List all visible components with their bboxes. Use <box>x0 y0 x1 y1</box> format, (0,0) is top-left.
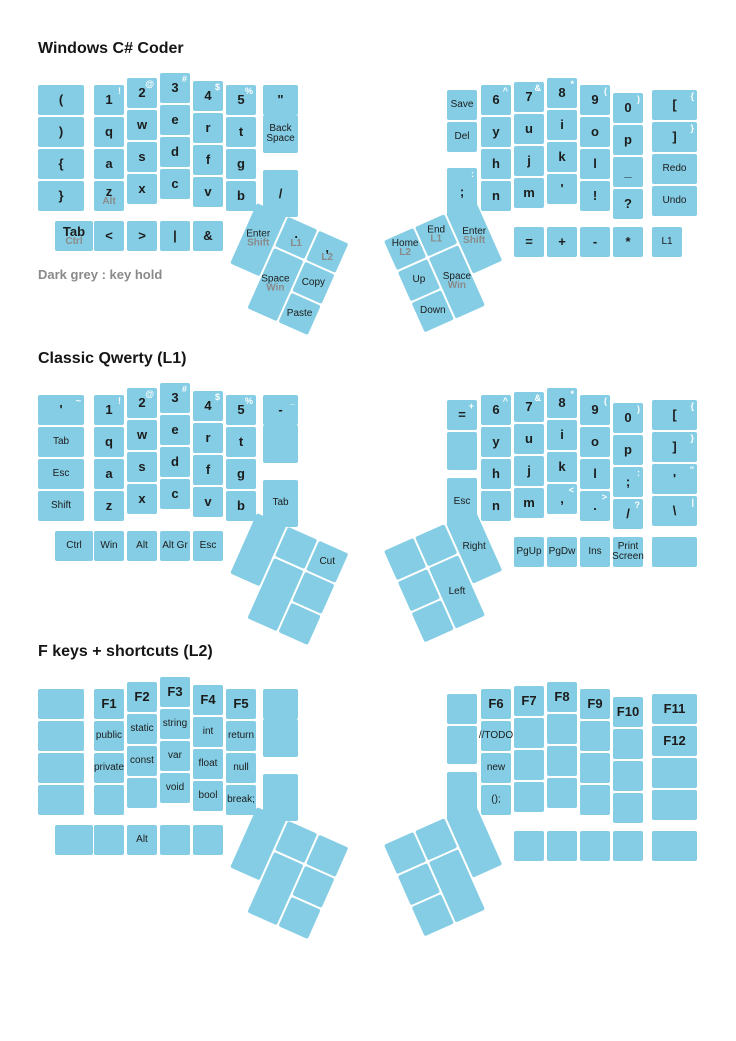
key-label: F2 <box>134 690 149 703</box>
key-symbol: } <box>38 181 84 211</box>
key-label: 5 <box>237 403 244 416</box>
key-label: + <box>558 235 566 248</box>
key-shift-symbol: $ <box>215 82 220 92</box>
key-d: d <box>160 137 190 167</box>
key-8: 8* <box>547 78 577 108</box>
key-h: h <box>481 459 511 489</box>
key-blank <box>447 726 477 764</box>
key-label: null <box>233 763 249 773</box>
key-blank <box>580 785 610 815</box>
key-2: 2@ <box>127 388 157 418</box>
key-shift-symbol: : <box>471 169 474 179</box>
key-ctrl: Ctrl <box>55 531 93 561</box>
key-blank <box>514 750 544 780</box>
key-label: i <box>560 428 564 441</box>
key-esc: Esc <box>38 459 84 489</box>
key-label: bool <box>199 791 218 801</box>
key-label: r <box>205 121 210 134</box>
key-e: e <box>160 415 190 445</box>
key-label: v <box>204 495 211 508</box>
key-label: PgDw <box>549 547 576 557</box>
key-label: r <box>205 431 210 444</box>
key-label: Back Space <box>266 124 294 144</box>
key-g: g <box>226 149 256 179</box>
key-bool: bool <box>193 781 223 811</box>
key-label: y <box>492 125 499 138</box>
key-label: _ <box>624 165 631 178</box>
key-label: \ <box>673 504 677 517</box>
key-float: float <box>193 749 223 779</box>
key-label: u <box>525 122 533 135</box>
key-label: g <box>237 157 245 170</box>
key-symbol: '" <box>652 464 697 494</box>
key-shift-symbol: & <box>535 393 542 403</box>
key-shift-symbol: @ <box>145 389 154 399</box>
key-esc: Esc <box>193 531 223 561</box>
key-blank <box>514 718 544 748</box>
key-label: > <box>138 229 146 242</box>
key-label: 3 <box>171 391 178 404</box>
key-label: h <box>492 157 500 170</box>
key-shift-symbol: ) <box>637 94 640 104</box>
key-blank <box>278 603 320 645</box>
key-label: v <box>204 185 211 198</box>
key-print-screen: Print Screen <box>613 537 643 567</box>
key-label: 8 <box>558 86 565 99</box>
key-label: a <box>105 467 112 480</box>
key-label: & <box>203 229 212 242</box>
key-public: public <box>94 721 124 751</box>
key-label: n <box>492 189 500 202</box>
key-f8: F8 <box>547 682 577 712</box>
key-label: f <box>206 463 210 476</box>
key-label: < <box>105 229 113 242</box>
thumb-cluster: Cut <box>216 513 348 645</box>
section-title-classic-qwerty-l1: Classic Qwerty (L1) <box>38 350 187 368</box>
key-label: ] <box>672 440 676 453</box>
thumb-cluster: RightLeft <box>384 510 516 642</box>
key-int: int <box>193 717 223 747</box>
key-blank <box>263 689 298 719</box>
key-label: F8 <box>554 690 569 703</box>
key-symbol: * <box>613 227 643 257</box>
key-shift-symbol: } <box>690 433 694 443</box>
key-shift-symbol: | <box>691 497 694 507</box>
key-label: ' <box>560 182 563 195</box>
key-new: new <box>481 753 511 783</box>
key-symbol: + <box>547 227 577 257</box>
key-w: w <box>127 110 157 140</box>
key-label: //TODO <box>479 731 513 741</box>
key-label: { <box>58 157 63 170</box>
key-const: const <box>127 746 157 776</box>
key-f11: F11 <box>652 694 697 724</box>
key-label: F6 <box>488 697 503 710</box>
key-label: ? <box>624 197 632 210</box>
key-label: F3 <box>167 685 182 698</box>
key-label: s <box>138 150 145 163</box>
key-shift-symbol: & <box>535 83 542 93</box>
key-var: var <box>160 741 190 771</box>
key-l1: L1 <box>652 227 682 257</box>
key-label: | <box>173 229 177 242</box>
key-p: p <box>613 125 643 155</box>
key-blank <box>412 894 454 936</box>
key-label: [ <box>672 98 676 111</box>
key-blank <box>127 778 157 808</box>
key-shift-symbol: $ <box>215 392 220 402</box>
key-label: ) <box>59 125 63 138</box>
key-shift-symbol: ! <box>118 396 121 406</box>
key-label: k <box>558 150 565 163</box>
key-y: y <box>481 427 511 457</box>
key-shift-symbol: ^ <box>503 396 508 406</box>
key-8: 8* <box>547 388 577 418</box>
key-label: ] <box>672 130 676 143</box>
key-shift-symbol: } <box>690 123 694 133</box>
key-symbol: ' <box>547 174 577 204</box>
key-o: o <box>580 427 610 457</box>
key-label: j <box>527 464 531 477</box>
key-label: i <box>560 118 564 131</box>
key-g: g <box>226 459 256 489</box>
key-label: a <box>105 157 112 170</box>
thumb-cluster <box>384 804 516 936</box>
key-label: Paste <box>287 309 313 319</box>
key-2: 2@ <box>127 78 157 108</box>
key-hold-label: L2 <box>321 253 333 263</box>
key-symbol: .> <box>580 491 610 521</box>
key-label: 9 <box>591 93 598 106</box>
key-symbol: ! <box>580 181 610 211</box>
key-label: s <box>138 460 145 473</box>
key-label: Ctrl <box>66 541 82 551</box>
key-s: s <box>127 142 157 172</box>
key-q: q <box>94 427 124 457</box>
key-label: F11 <box>664 702 686 715</box>
key-label: 6 <box>492 93 499 106</box>
key-shift-symbol: # <box>182 384 187 394</box>
key-label: int <box>203 727 214 737</box>
key-label: F1 <box>101 697 116 710</box>
key-shift-symbol: ( <box>604 86 607 96</box>
key-z: z <box>94 491 124 521</box>
key-label: - <box>593 235 597 248</box>
key-shift-symbol: # <box>182 74 187 84</box>
key-label: 7 <box>525 90 532 103</box>
key-label: 1 <box>105 403 112 416</box>
key-shift-symbol: @ <box>145 79 154 89</box>
key-ins: Ins <box>580 537 610 567</box>
key-label: ' <box>673 472 676 485</box>
key-f7: F7 <box>514 686 544 716</box>
legend-note: Dark grey : key hold <box>38 267 162 282</box>
key-label: Tab <box>53 437 69 447</box>
key-symbol: = <box>514 227 544 257</box>
key-label: / <box>279 187 283 200</box>
key-redo: Redo <box>652 154 697 184</box>
key-label: 5 <box>237 93 244 106</box>
key-label: q <box>105 125 113 138</box>
key-y: y <box>481 117 511 147</box>
key-label: t <box>239 125 243 138</box>
key-a: a <box>94 149 124 179</box>
key-label: j <box>527 154 531 167</box>
key-void: void <box>160 773 190 803</box>
key-symbol: < <box>94 221 124 251</box>
key-f: f <box>193 455 223 485</box>
key-f10: F10 <box>613 697 643 727</box>
key-label: = <box>525 235 533 248</box>
key-symbol: [{ <box>652 90 697 120</box>
key-label: c <box>171 487 178 500</box>
thumb-cluster: EnterShift.L1,L2SpaceWinCopyPaste <box>216 203 348 335</box>
key-label: q <box>105 435 113 448</box>
key-p: p <box>613 435 643 465</box>
key-v: v <box>193 487 223 517</box>
key-blank <box>447 432 477 470</box>
key-9: 9( <box>580 395 610 425</box>
key-symbol: '~ <box>38 395 84 425</box>
key-label: new <box>487 763 505 773</box>
key-label: F10 <box>617 705 639 718</box>
key-label: F5 <box>233 697 248 710</box>
key-null: null <box>226 753 256 783</box>
key-symbol: > <box>127 221 157 251</box>
key-symbol: \| <box>652 496 697 526</box>
key-label: e <box>171 423 178 436</box>
key-shift-symbol: % <box>245 86 253 96</box>
key-shift-symbol: ! <box>118 86 121 96</box>
key-x: x <box>127 174 157 204</box>
key-f9: F9 <box>580 689 610 719</box>
key-blank <box>94 785 124 815</box>
key-c: c <box>160 169 190 199</box>
key-symbol: _ <box>613 157 643 187</box>
key-return: return <box>226 721 256 751</box>
key-shift-symbol: ( <box>604 396 607 406</box>
key-x: x <box>127 484 157 514</box>
key-1: 1! <box>94 85 124 115</box>
key-label: b <box>237 499 245 512</box>
key-shift-symbol: ^ <box>503 86 508 96</box>
key-blank <box>580 831 610 861</box>
key-blank <box>652 758 697 788</box>
key-blank <box>613 729 643 759</box>
key-blank <box>38 753 84 783</box>
key-hold-label: Win <box>266 284 284 295</box>
key-label: g <box>237 467 245 480</box>
key-label: Redo <box>663 164 687 174</box>
key-u: u <box>514 424 544 454</box>
key-pgup: PgUp <box>514 537 544 567</box>
key-label: w <box>137 118 147 131</box>
key-label: 6 <box>492 403 499 416</box>
key-blank <box>652 790 697 820</box>
key-m: m <box>514 488 544 518</box>
key-label: F4 <box>200 693 215 706</box>
key-label: private <box>94 763 124 773</box>
key-blank <box>278 897 320 939</box>
key-k: k <box>547 452 577 482</box>
key-label: Tab <box>272 498 288 508</box>
key-label: , <box>560 492 564 505</box>
key-label: z <box>106 499 113 512</box>
key-label: const <box>130 756 154 766</box>
key-symbol: -_ <box>263 395 298 425</box>
key-label: F7 <box>521 694 536 707</box>
key-f: f <box>193 145 223 175</box>
key-f5: F5 <box>226 689 256 719</box>
key-5: 5% <box>226 395 256 425</box>
key-r: r <box>193 423 223 453</box>
key-label: 0 <box>624 411 631 424</box>
key-1: 1! <box>94 395 124 425</box>
key-s: s <box>127 452 157 482</box>
key-label: Left <box>449 587 466 597</box>
section-title-windows-csharp-coder: Windows C# Coder <box>38 40 184 58</box>
key-label: f <box>206 153 210 166</box>
key-static: static <box>127 714 157 744</box>
key-label: x <box>138 182 145 195</box>
key-label: x <box>138 492 145 505</box>
key-label: Up <box>413 275 426 285</box>
key-blank <box>547 831 577 861</box>
key-label: void <box>166 783 184 793</box>
key-blank <box>652 831 697 861</box>
key-label: " <box>277 93 283 106</box>
key-d: d <box>160 447 190 477</box>
key-alt: Alt <box>127 531 157 561</box>
key-pgdw: PgDw <box>547 537 577 567</box>
key-symbol: - <box>580 227 610 257</box>
key-v: v <box>193 177 223 207</box>
key-label: F9 <box>587 697 602 710</box>
key-o: o <box>580 117 610 147</box>
key-label: 9 <box>591 403 598 416</box>
key-win: Win <box>94 531 124 561</box>
key-label: 4 <box>204 399 211 412</box>
key-label: break; <box>227 795 255 805</box>
key-hold-label: L2 <box>399 248 411 259</box>
key-label: Right <box>462 542 485 552</box>
key-hold-label: Ctrl <box>65 237 82 248</box>
key-f4: F4 <box>193 685 223 715</box>
key-f3: F3 <box>160 677 190 707</box>
key-0: 0) <box>613 403 643 433</box>
key-m: m <box>514 178 544 208</box>
key-blank <box>55 825 93 855</box>
key-label: [ <box>672 408 676 421</box>
key-tab: Tab <box>38 427 84 457</box>
key-t: t <box>226 117 256 147</box>
key-symbol: ? <box>613 189 643 219</box>
key-blank <box>447 694 477 724</box>
key-label: ; <box>626 475 630 488</box>
key-label: m <box>523 496 535 509</box>
key-label: Cut <box>319 557 335 567</box>
key-symbol: ]} <box>652 122 697 152</box>
key-back-space: Back Space <box>263 115 298 153</box>
key-label: t <box>239 435 243 448</box>
key-label: (); <box>491 795 500 805</box>
key-label: d <box>171 455 179 468</box>
key-private: private <box>94 753 124 783</box>
key-label: Alt <box>136 835 148 845</box>
key-shift-symbol: + <box>469 401 474 411</box>
key-label: Esc <box>200 541 217 551</box>
key-f6: F6 <box>481 689 511 719</box>
key-l: l <box>580 149 610 179</box>
key-6: 6^ <box>481 395 511 425</box>
key-blank <box>38 785 84 815</box>
key-label: ; <box>460 185 464 198</box>
key-r: r <box>193 113 223 143</box>
key-symbol: & <box>193 221 223 251</box>
key-blank <box>94 825 124 855</box>
key-blank <box>547 714 577 744</box>
key-label: ' <box>59 403 62 416</box>
key-k: k <box>547 142 577 172</box>
key-blank <box>263 719 298 757</box>
key-label: ! <box>593 189 597 202</box>
key-label: Save <box>451 100 474 110</box>
key-label: p <box>624 443 632 456</box>
section-title-f-keys-shortcuts-l2: F keys + shortcuts (L2) <box>38 643 213 661</box>
key-blank <box>38 721 84 751</box>
key-label: var <box>168 751 182 761</box>
key-label: h <box>492 467 500 480</box>
key-label: m <box>523 186 535 199</box>
key-hold-label: Alt <box>102 197 115 208</box>
key-label: d <box>171 145 179 158</box>
key-0: 0) <box>613 93 643 123</box>
key-shift-symbol: ) <box>637 404 640 414</box>
key-label: Del <box>454 132 469 142</box>
key-z: zAlt <box>94 181 124 211</box>
key-symbol: ,< <box>547 484 577 514</box>
key-label: = <box>458 408 466 421</box>
key-6: 6^ <box>481 85 511 115</box>
key-save: Save <box>447 90 477 120</box>
key-shift-symbol: * <box>570 79 574 89</box>
key-label: u <box>525 432 533 445</box>
key-4: 4$ <box>193 391 223 421</box>
key-hold-label: L1 <box>290 239 302 249</box>
key-label: . <box>593 499 597 512</box>
key-f2: F2 <box>127 682 157 712</box>
key-label: 4 <box>204 89 211 102</box>
key-shift: Shift <box>38 491 84 521</box>
key-symbol: ( <box>38 85 84 115</box>
key-tab: TabCtrl <box>55 221 93 251</box>
key-w: w <box>127 420 157 450</box>
key-shift-symbol: ? <box>635 500 641 510</box>
key-i: i <box>547 110 577 140</box>
key-label: w <box>137 428 147 441</box>
key-i: i <box>547 420 577 450</box>
key-label: l <box>593 467 597 480</box>
key-label: ( <box>59 93 63 106</box>
key-label: Win <box>100 541 117 551</box>
key-f12: F12 <box>652 726 697 756</box>
key-del: Del <box>447 122 477 152</box>
key-label: Alt Gr <box>162 541 188 551</box>
key-label: n <box>492 499 500 512</box>
key-shift-symbol: < <box>569 485 574 495</box>
key-symbol: ;: <box>613 467 643 497</box>
key-label: 8 <box>558 396 565 409</box>
